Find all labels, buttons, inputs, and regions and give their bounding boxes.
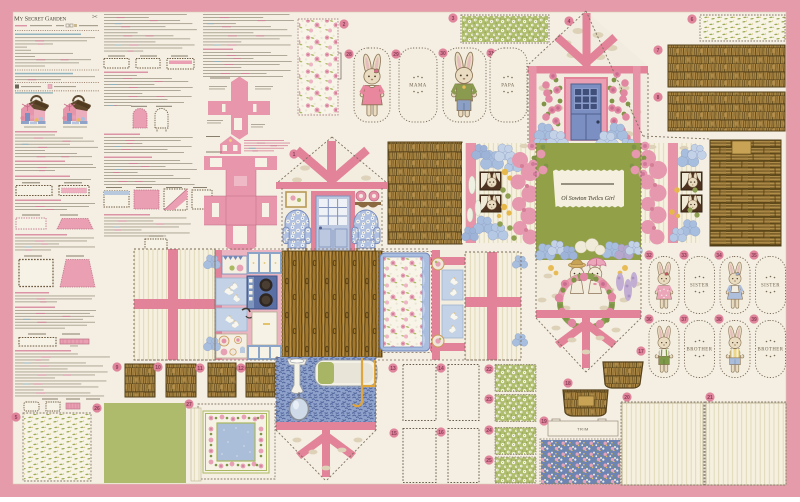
svg-text:29: 29 bbox=[393, 52, 399, 58]
svg-text:✂: ✂ bbox=[92, 14, 98, 21]
svg-text:32: 32 bbox=[646, 253, 652, 259]
svg-text:17: 17 bbox=[638, 349, 644, 355]
svg-text:4: 4 bbox=[568, 19, 571, 25]
svg-text:36: 36 bbox=[646, 317, 652, 323]
svg-text:12: 12 bbox=[238, 366, 244, 372]
svg-text:TRIM: TRIM bbox=[577, 427, 589, 432]
svg-text:33: 33 bbox=[681, 253, 687, 259]
svg-text:39: 39 bbox=[751, 317, 757, 323]
svg-text:14: 14 bbox=[438, 366, 444, 372]
svg-text:10: 10 bbox=[155, 365, 161, 371]
svg-text:38: 38 bbox=[716, 317, 722, 323]
svg-text:BROTHER: BROTHER bbox=[758, 348, 784, 353]
svg-text:27: 27 bbox=[186, 402, 192, 408]
svg-text:SISTER: SISTER bbox=[690, 284, 709, 289]
svg-text:20: 20 bbox=[624, 395, 630, 401]
svg-text:7: 7 bbox=[657, 48, 660, 54]
svg-text:15: 15 bbox=[391, 431, 397, 437]
svg-text:MAMA: MAMA bbox=[409, 84, 426, 89]
svg-text:18: 18 bbox=[565, 381, 571, 387]
svg-text:37: 37 bbox=[681, 317, 687, 323]
svg-text:11: 11 bbox=[197, 366, 203, 372]
svg-text:8: 8 bbox=[657, 95, 660, 101]
svg-text:SISTER: SISTER bbox=[761, 284, 780, 289]
svg-text:22: 22 bbox=[486, 367, 492, 373]
svg-text:16: 16 bbox=[438, 430, 444, 436]
svg-text:6: 6 bbox=[691, 17, 694, 23]
svg-text:24: 24 bbox=[486, 428, 492, 434]
svg-text:PAPA: PAPA bbox=[501, 84, 514, 89]
svg-text:5: 5 bbox=[15, 415, 18, 421]
svg-text:34: 34 bbox=[716, 253, 722, 259]
svg-text:MY SECRET GARDEN: MY SECRET GARDEN bbox=[14, 16, 67, 23]
svg-text:3: 3 bbox=[452, 16, 455, 22]
svg-text:BROTHER: BROTHER bbox=[687, 348, 713, 353]
svg-text:1: 1 bbox=[293, 152, 296, 158]
svg-text:21: 21 bbox=[707, 395, 713, 401]
svg-text:2: 2 bbox=[343, 22, 346, 28]
svg-text:35: 35 bbox=[751, 253, 757, 259]
svg-text:28: 28 bbox=[346, 52, 352, 58]
svg-text:Ol Sowton Twilcs Girl: Ol Sowton Twilcs Girl bbox=[561, 196, 615, 202]
svg-text:13: 13 bbox=[390, 366, 396, 372]
svg-text:9: 9 bbox=[116, 365, 119, 371]
svg-text:23: 23 bbox=[486, 397, 492, 403]
svg-text:26: 26 bbox=[94, 406, 100, 412]
svg-text:25: 25 bbox=[486, 458, 492, 464]
svg-text:19: 19 bbox=[541, 419, 547, 425]
svg-text:30: 30 bbox=[440, 51, 446, 57]
